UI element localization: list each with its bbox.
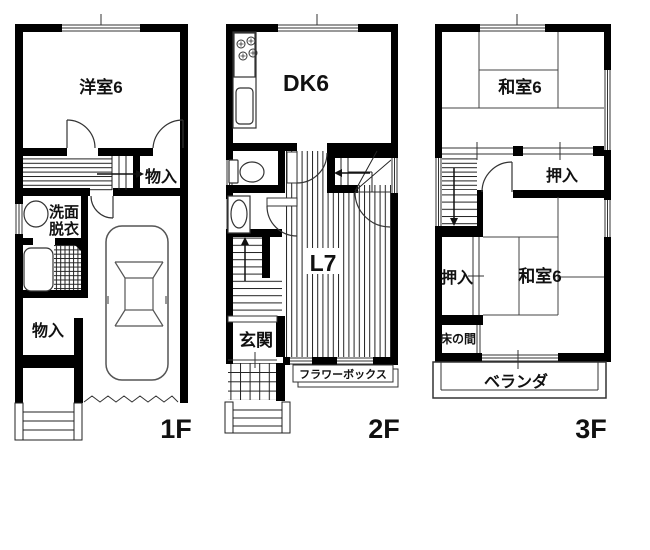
entrance-porch-tile xyxy=(228,363,276,400)
room-label-tatami-top: 和室6 xyxy=(498,77,541,97)
stairs-3f-lower xyxy=(442,190,477,228)
window-left-stairs-3f xyxy=(435,158,442,236)
veranda-door xyxy=(482,350,558,369)
floor-3f: 和室6 押入 押入 和室6 床の間 ベランダ 3F xyxy=(433,14,611,444)
room-label-veranda: ベランダ xyxy=(484,372,548,391)
window-top-1f xyxy=(62,14,140,32)
floor-2f: DK6 L7 玄関 フラワーボックス 2F xyxy=(225,14,400,444)
floor-label-2f: 2F xyxy=(368,414,400,444)
door-hall-garage xyxy=(91,196,113,218)
floor-label-1f: 1F xyxy=(160,414,192,444)
room-label-living: L7 xyxy=(310,250,337,276)
room-label-tatami-bottom: 和室6 xyxy=(518,266,561,286)
tokonoma-edge xyxy=(477,325,480,353)
window-bottom-living-2 xyxy=(337,357,373,365)
room-label-storage-bottom: 物入 xyxy=(32,321,64,340)
stove xyxy=(234,33,255,77)
room-label-closet-top: 押入 xyxy=(546,166,578,185)
door-stairs-3f xyxy=(482,162,512,192)
floor-label-3f: 3F xyxy=(575,414,607,444)
window-right-tatami-top xyxy=(604,70,611,150)
room-label-dk: DK6 xyxy=(283,70,329,96)
room-label-washroom-2: 脱衣 xyxy=(49,220,79,238)
label-flower-box: フラワーボックス xyxy=(299,367,387,381)
room-label-entrance: 玄関 xyxy=(239,330,273,350)
window-left-washroom xyxy=(15,204,23,234)
toilet xyxy=(229,160,264,183)
room-label-closet-bottom: 押入 xyxy=(441,268,473,287)
room-label-western: 洋室6 xyxy=(79,77,122,97)
car xyxy=(106,226,168,380)
floor-plan-drawing: 洋室6 物入 洗面 脱衣 物入 1F xyxy=(0,0,650,550)
window-right-tatami-bottom xyxy=(604,200,611,237)
window-right-stairs xyxy=(391,158,398,193)
bathroom-tile xyxy=(54,245,83,291)
tatami-lines-bottom xyxy=(483,197,604,315)
door-western-left xyxy=(67,120,95,148)
bathtub xyxy=(24,248,53,291)
floor-1f: 洋室6 物入 洗面 脱衣 物入 1F xyxy=(15,14,192,444)
window-bottom-living-1 xyxy=(290,357,312,365)
room-label-tokonoma: 床の間 xyxy=(440,331,476,346)
entry-steps-2f xyxy=(225,402,290,433)
window-top-3f xyxy=(480,14,545,32)
entry-steps-1f xyxy=(15,403,82,440)
window-top-2f xyxy=(278,14,358,32)
washbasin-2f xyxy=(228,196,250,233)
room-label-washroom-1: 洗面 xyxy=(49,203,79,221)
garage-door xyxy=(84,396,178,402)
door-western-right xyxy=(153,120,183,148)
hall-flooring-2f xyxy=(230,278,282,318)
room-label-storage-mid: 物入 xyxy=(145,167,177,186)
shoe-cabinet xyxy=(228,316,277,322)
stairs-3f-upper xyxy=(442,158,477,190)
floor-plan-page: 洋室6 物入 洗面 脱衣 物入 1F xyxy=(0,0,650,550)
kitchen-sink xyxy=(236,88,253,124)
washbasin-1f xyxy=(24,201,48,227)
